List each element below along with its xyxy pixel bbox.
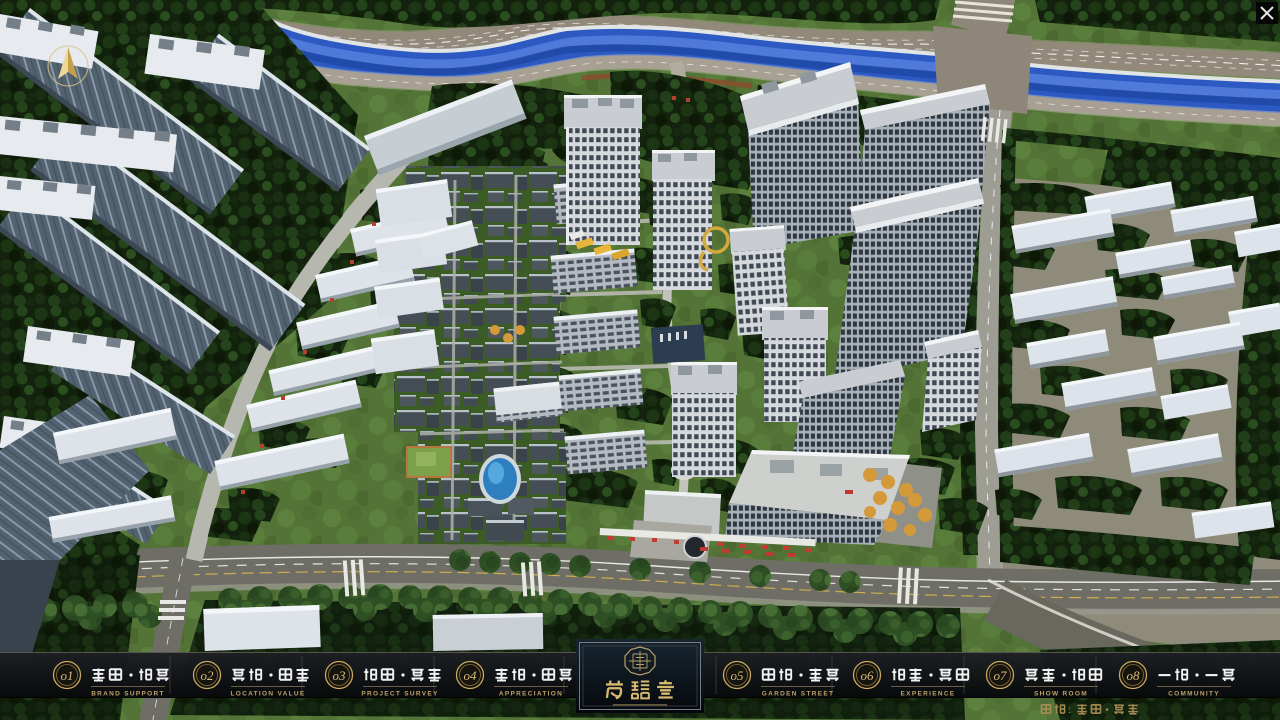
svg-text:o6: o6 [861, 668, 875, 683]
svg-text:GARDEN STREET: GARDEN STREET [762, 691, 835, 698]
svg-text::: : [1068, 705, 1071, 716]
svg-text:LOCATION VALUE: LOCATION VALUE [230, 691, 305, 698]
svg-text:BRAND SUPPORT: BRAND SUPPORT [91, 691, 165, 698]
svg-text:o5: o5 [731, 668, 745, 683]
svg-text:o4: o4 [464, 668, 478, 683]
svg-text:EXPERIENCE: EXPERIENCE [901, 691, 956, 698]
svg-text:o2: o2 [201, 668, 215, 683]
svg-text:APPRECIATION: APPRECIATION [499, 691, 563, 698]
svg-text:SHOW ROOM: SHOW ROOM [1034, 691, 1088, 698]
svg-text:COMMUNITY: COMMUNITY [1168, 691, 1220, 698]
svg-text:PROJECT SURVEY: PROJECT SURVEY [361, 691, 438, 698]
svg-text:o8: o8 [1127, 668, 1141, 683]
svg-text:o1: o1 [61, 668, 74, 683]
svg-text:o7: o7 [994, 668, 1008, 683]
svg-text:o3: o3 [333, 668, 347, 683]
